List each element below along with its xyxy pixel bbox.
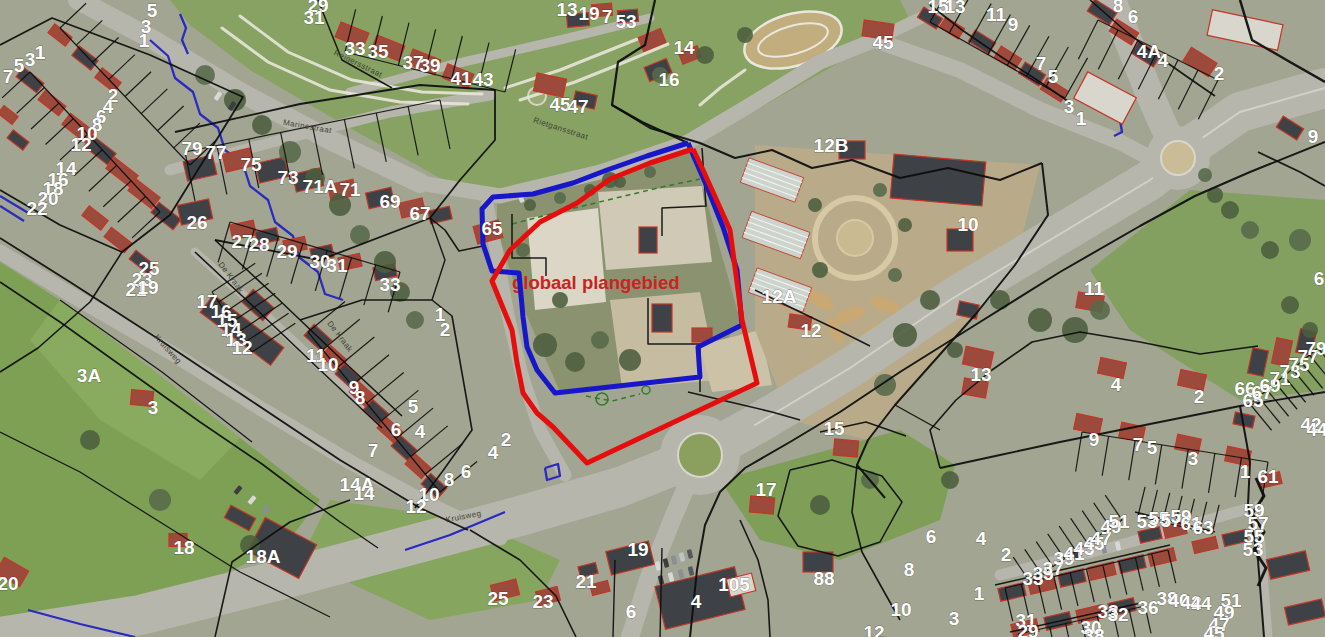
parcel-number: 71A — [303, 176, 338, 197]
parcel-number: 45 — [872, 32, 894, 53]
parcel-number: 73 — [277, 167, 298, 188]
tree — [1281, 296, 1299, 314]
parcel-number: 13 — [556, 0, 577, 20]
parcel-number: 26 — [186, 212, 207, 233]
parcel-number: 1 — [35, 42, 46, 63]
parcel-number: 3 — [25, 49, 36, 70]
parcel-number: 1 — [1076, 108, 1087, 129]
parcel-number: 3 — [148, 397, 159, 418]
parcel-number: 45 — [1203, 623, 1225, 637]
parcel-number: 5 — [14, 55, 25, 76]
plan-area-label: globaal plangebied — [512, 272, 680, 293]
parcel-number: 7 — [602, 6, 613, 27]
parcel-number: 12 — [70, 134, 91, 155]
parcel-number: 19 — [578, 3, 599, 24]
tree — [1241, 221, 1259, 239]
parcel-number: 61 — [1257, 466, 1279, 487]
parcel-number: 47 — [567, 96, 588, 117]
parcel-number: 7 — [368, 440, 379, 461]
parcel-number: 2 — [1214, 63, 1225, 84]
aerial-cadastral-map: globaal plangebiedMarinestraatRietgansst… — [0, 0, 1325, 637]
parcel-number: 2 — [1001, 544, 1012, 565]
parcel-number: 32 — [1107, 604, 1128, 625]
parcel-number: 39 — [419, 55, 440, 76]
tree — [1302, 322, 1318, 338]
parcel-number: 21 — [575, 571, 597, 592]
parcel-number: 71 — [339, 179, 361, 200]
parcel-number: 5 — [1048, 66, 1059, 87]
parcel-number: 7 — [1036, 53, 1047, 74]
parcel-number: 18 — [173, 537, 194, 558]
parcel-number: 43 — [472, 69, 493, 90]
building — [890, 154, 985, 206]
parcel-number: 3 — [1188, 448, 1199, 469]
tree — [898, 218, 912, 232]
parcel-number: 12A — [762, 286, 797, 307]
parcel-number: 12 — [231, 337, 252, 358]
parcel-number: 4 — [488, 442, 499, 463]
parcel-number: 69 — [379, 191, 400, 212]
tree — [810, 495, 830, 515]
parcel-number: 9 — [1308, 126, 1319, 147]
parcel-number: 44 — [1190, 593, 1212, 614]
aerial-cadastral-map-viewport: globaal plangebiedMarinestraatRietgansst… — [0, 0, 1325, 637]
parcel-number: 9 — [1008, 14, 1019, 35]
tree — [873, 183, 887, 197]
parcel-number: 22 — [26, 198, 47, 219]
parcel-number: 33 — [379, 274, 400, 295]
tree — [195, 65, 215, 85]
parcel-number: 18A — [246, 546, 281, 567]
parcel-number: 7 — [1133, 434, 1144, 455]
landscape-ellipse — [837, 220, 873, 256]
parcel-number: 11 — [986, 4, 1007, 25]
tree — [893, 323, 917, 347]
parcel-number: 12 — [800, 320, 821, 341]
parcel-number: 41 — [450, 68, 472, 89]
building-footprint — [639, 227, 657, 253]
parcel-number: 2 — [1194, 386, 1205, 407]
parcel-number: 28 — [248, 234, 269, 255]
tree — [552, 292, 568, 308]
tree — [812, 262, 828, 278]
building-footprint — [833, 439, 858, 457]
parcel-number: 11 — [1084, 278, 1105, 299]
parcel-number: 19 — [627, 539, 648, 560]
parcel-number: 33 — [344, 38, 365, 59]
parcel-number: 14 — [673, 37, 695, 58]
parcel-number: 12 — [405, 496, 426, 517]
parcel-number: 4 — [415, 421, 426, 442]
parcel-number: 4 — [691, 591, 702, 612]
parcel-number: 10 — [317, 354, 338, 375]
parcel-number: 53 — [615, 11, 636, 32]
tree — [696, 46, 714, 64]
parcel-number: 6 — [1128, 6, 1139, 27]
parcel-number: 63 — [1192, 517, 1213, 538]
parcel-number: 79 — [181, 138, 202, 159]
parcel-number: 10 — [890, 599, 911, 620]
tree — [941, 471, 959, 489]
parcel-number: 79 — [1305, 338, 1325, 359]
tree — [808, 198, 822, 212]
parcel-number: 4 — [1111, 374, 1122, 395]
parcel-number: 6 — [626, 601, 637, 622]
parcel-number: 17 — [755, 479, 776, 500]
parcel-number: 4 — [976, 528, 987, 549]
parcel-number: 10 — [957, 214, 978, 235]
tree — [252, 115, 272, 135]
tree — [619, 349, 641, 371]
parcel-number: 31 — [303, 7, 325, 28]
tree — [1261, 241, 1279, 259]
tree — [1221, 201, 1239, 219]
parcel-number: 3 — [1064, 96, 1075, 117]
roundabout-island — [678, 433, 722, 477]
parcel-number: 8 — [444, 469, 455, 490]
parcel-number: 13 — [970, 364, 991, 385]
parcel-number: 8 — [1113, 0, 1124, 16]
parcel-number: 23 — [532, 591, 553, 612]
parcel-number: 8 — [355, 387, 366, 408]
parcel-number: 2 — [440, 319, 451, 340]
parcel-number: 29 — [1017, 621, 1038, 637]
tree — [644, 166, 656, 178]
parcel-number: 12 — [863, 622, 884, 637]
tree — [591, 331, 609, 349]
building — [833, 439, 858, 457]
parcel-number: 44 — [1306, 419, 1325, 440]
tree — [1198, 168, 1212, 182]
building-footprint — [890, 154, 985, 206]
parcel-number: 35 — [367, 41, 389, 62]
tree — [80, 430, 100, 450]
tree — [737, 27, 753, 43]
parcel-number: 6 — [391, 419, 402, 440]
parcel-number: 19 — [137, 277, 158, 298]
parcel-number: 36 — [1137, 597, 1158, 618]
parcel-number: 16 — [658, 69, 679, 90]
parcel-number: 25 — [487, 588, 509, 609]
parcel-number: 9 — [1089, 429, 1100, 450]
parcel-number: 5 — [408, 396, 419, 417]
tree — [533, 333, 557, 357]
parcel-number: 15 — [823, 418, 845, 439]
tree — [224, 89, 246, 111]
roundabout-island — [1161, 141, 1195, 175]
parcel-number: 65 — [481, 218, 503, 239]
tree — [279, 141, 301, 163]
parcel-number: 51 — [1108, 511, 1130, 532]
parcel-number: 20 — [0, 573, 19, 594]
parcel-number: 77 — [205, 142, 226, 163]
parcel-number: 2 — [501, 429, 512, 450]
parcel-number: 4 — [1158, 50, 1169, 71]
parcel-number: 1 — [139, 30, 150, 51]
tree — [888, 268, 902, 282]
parcel-number: 3A — [77, 365, 102, 386]
parcel-number: 12B — [814, 135, 849, 156]
tree — [920, 290, 940, 310]
parcel-number: 105 — [718, 574, 750, 595]
building — [652, 304, 672, 332]
parcel-number: 38 — [1083, 625, 1104, 637]
parcel-number: 1 — [1240, 461, 1251, 482]
tree — [1062, 317, 1088, 343]
parcel-number: 75 — [240, 154, 262, 175]
parcel-number: 5 — [1147, 437, 1158, 458]
parcel-number: 67 — [409, 203, 430, 224]
parcel-number: 13 — [944, 0, 965, 17]
tree — [406, 311, 424, 329]
building — [639, 227, 657, 253]
tree — [1090, 300, 1110, 320]
tree — [149, 489, 171, 511]
parcel-number: 3 — [949, 608, 960, 629]
tree — [554, 192, 566, 204]
parcel-number: 53 — [1242, 539, 1263, 560]
tree — [565, 352, 585, 372]
parcel-number: 1 — [974, 583, 985, 604]
parcel-number: 6 — [926, 526, 937, 547]
building-footprint — [652, 304, 672, 332]
tree — [1289, 229, 1311, 251]
parcel-number: 29 — [276, 241, 297, 262]
tree — [524, 199, 536, 211]
parcel-number: 88 — [813, 568, 834, 589]
parcel-number: 14 — [353, 483, 375, 504]
parcel-number: 6 — [1314, 268, 1325, 289]
parcel-number: 31 — [326, 255, 348, 276]
tree — [1028, 308, 1052, 332]
parcel-number: 7 — [3, 66, 14, 87]
parcel-number: 6 — [461, 461, 472, 482]
parcel-number: 8 — [904, 559, 915, 580]
